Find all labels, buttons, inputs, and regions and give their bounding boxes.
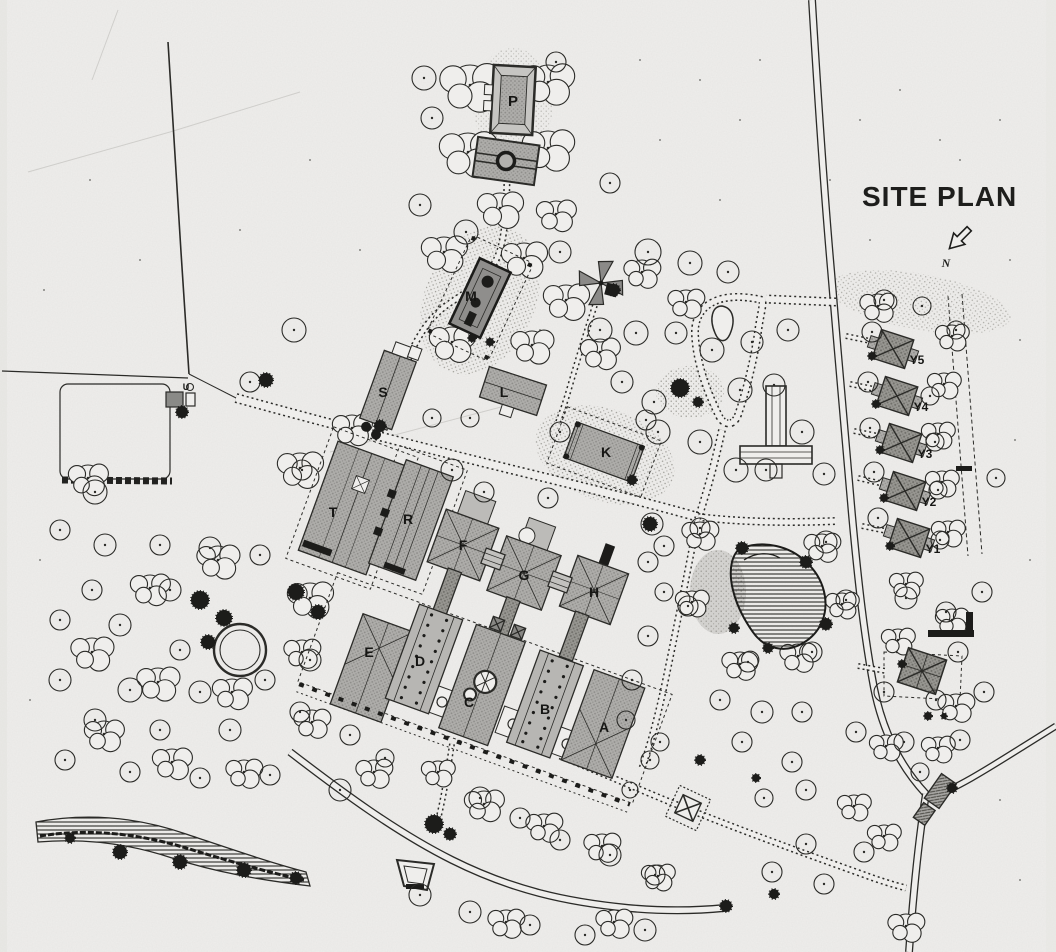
- shrub-icon: [425, 815, 443, 833]
- speck: [39, 559, 41, 561]
- shrub-icon: [113, 845, 127, 859]
- site-plan-title: SITE PLAN: [862, 181, 1017, 212]
- building-label-h: H: [589, 584, 599, 600]
- speck: [869, 239, 871, 241]
- site-plan-drawing: T R S K L M P U F G H E D C B A Y5 Y4 Y3…: [0, 0, 1056, 952]
- shrub-icon: [643, 517, 657, 531]
- speck: [1029, 559, 1031, 561]
- shrub-icon: [947, 783, 957, 793]
- shrub-icon: [872, 400, 880, 408]
- speck: [699, 79, 701, 81]
- building-label-p: P: [508, 93, 518, 110]
- building-label-g: G: [519, 567, 530, 583]
- building-label-u: U: [183, 382, 190, 392]
- shrub-icon: [259, 373, 273, 387]
- building-label-t: T: [329, 504, 338, 520]
- building-label-c: C: [464, 694, 474, 710]
- speck: [659, 139, 661, 141]
- building-label-r: R: [403, 511, 413, 527]
- speck: [1019, 339, 1021, 341]
- house-label-y1: Y1: [926, 542, 941, 556]
- speck: [359, 249, 361, 251]
- shrub-icon: [627, 475, 637, 485]
- speck: [239, 229, 241, 231]
- north-label: N: [941, 256, 952, 270]
- building-label-d: D: [415, 653, 425, 669]
- building-label-m: M: [465, 288, 477, 304]
- shrub-icon: [468, 334, 476, 342]
- shrub-icon: [237, 863, 251, 877]
- speck: [89, 179, 91, 181]
- speck: [859, 119, 861, 121]
- speck: [1019, 879, 1021, 881]
- speck: [29, 699, 31, 701]
- shrub-icon: [868, 352, 876, 360]
- speck: [309, 159, 311, 161]
- house-label-y2: Y2: [922, 495, 937, 509]
- speck: [739, 119, 741, 121]
- shrub-icon: [886, 542, 894, 550]
- shrub-icon: [311, 605, 325, 619]
- speck: [899, 89, 901, 91]
- speck: [999, 799, 1001, 801]
- shrub-icon: [941, 713, 947, 719]
- shrub-icon: [486, 338, 494, 346]
- shrub-icon: [608, 284, 620, 296]
- shrub-icon: [671, 379, 689, 397]
- shrub-icon: [763, 643, 773, 653]
- building-label-l: L: [500, 384, 509, 400]
- shrub-icon: [736, 542, 748, 554]
- shrub-icon: [898, 660, 906, 668]
- shrub-icon: [374, 420, 386, 432]
- shrub-icon: [876, 446, 884, 454]
- building-label-k: K: [601, 444, 611, 460]
- speck: [539, 329, 541, 331]
- ring-symbol: [496, 151, 515, 170]
- shrub-icon: [769, 889, 779, 899]
- speck: [759, 59, 761, 61]
- building-o: [473, 137, 540, 185]
- shrub-icon: [752, 774, 760, 782]
- shrub-icon: [720, 900, 732, 912]
- speck: [719, 199, 721, 201]
- speck: [1014, 439, 1016, 441]
- building-label-s: S: [378, 384, 387, 400]
- speck: [829, 179, 831, 181]
- shrub-icon: [176, 406, 188, 418]
- house-label-y4: Y4: [914, 400, 929, 414]
- speck: [43, 289, 45, 291]
- shrub-icon: [191, 591, 209, 609]
- building-label-e: E: [364, 644, 373, 660]
- shrub-icon: [444, 828, 456, 840]
- house-label-y5: Y5: [910, 353, 925, 367]
- shrub-icon: [800, 556, 812, 568]
- shrub-icon: [201, 635, 215, 649]
- shrub-icon: [729, 623, 739, 633]
- building-label-a: A: [599, 719, 609, 735]
- building-label-f: F: [459, 537, 468, 553]
- shrub-icon: [65, 833, 75, 843]
- shrub-icon: [880, 494, 888, 502]
- shrub-icon: [924, 712, 932, 720]
- speck: [1009, 259, 1011, 261]
- building-label-b: B: [540, 701, 550, 717]
- speck: [959, 159, 961, 161]
- shrub-icon: [693, 397, 703, 407]
- speck: [999, 119, 1001, 121]
- shrub-icon: [288, 584, 304, 600]
- house-label-y3: Y3: [918, 447, 933, 461]
- road-surface: [766, 299, 836, 302]
- shrub-icon: [216, 610, 232, 626]
- shrub-icon: [695, 755, 705, 765]
- shrub-icon: [173, 855, 187, 869]
- speck: [139, 259, 141, 261]
- speck: [939, 139, 941, 141]
- speck: [639, 59, 641, 61]
- site-plan-scan: T R S K L M P U F G H E D C B A Y5 Y4 Y3…: [0, 0, 1056, 952]
- shrub-icon: [820, 618, 832, 630]
- shrub-icon: [290, 872, 302, 884]
